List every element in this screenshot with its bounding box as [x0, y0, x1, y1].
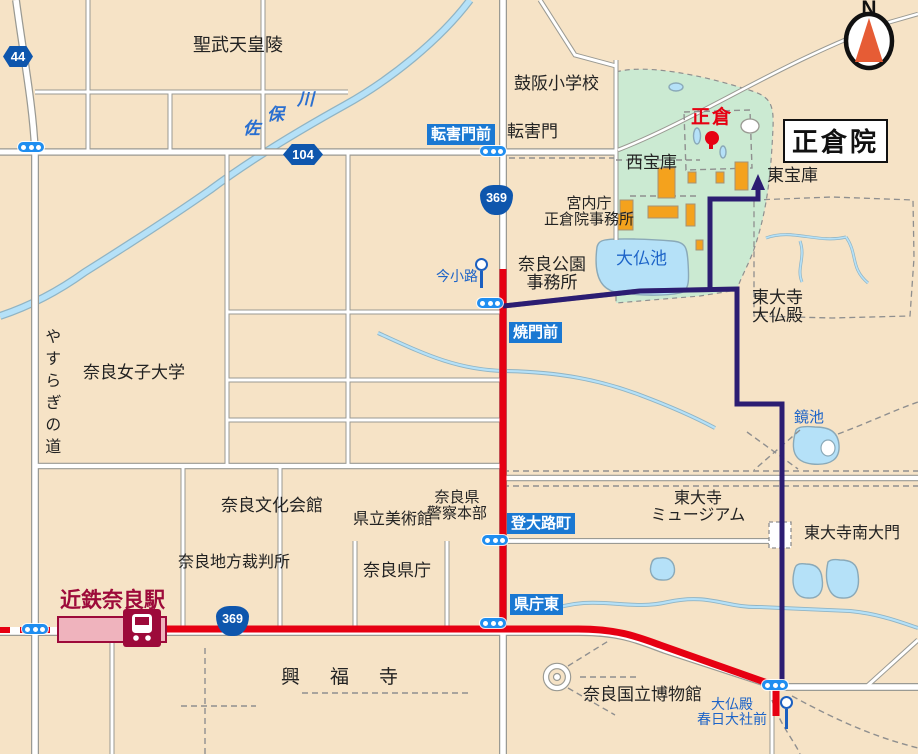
traffic-light-icon	[22, 624, 48, 634]
label-kagami-pond: 鏡池	[794, 410, 824, 426]
red-dot-marker	[705, 131, 719, 145]
label-todaiji-museum-line1: 東大寺	[643, 490, 753, 507]
kagami-pond-island	[821, 440, 835, 456]
traffic-light-icon	[477, 298, 503, 308]
label-park-office: 奈良公園 事務所	[511, 256, 593, 293]
label-imperial-office: 宮内庁 正倉院事務所	[543, 196, 635, 228]
park-clearing	[741, 119, 759, 133]
label-saho-river-char1: 佐	[243, 114, 260, 139]
bus-stop-label-yakimon-mae: 焼門前	[509, 322, 562, 343]
label-saho-river-char2: 保	[267, 100, 284, 125]
label-culture-hall: 奈良文化会館	[221, 497, 323, 515]
label-daibutsuden: 東大寺 大仏殿	[752, 289, 803, 326]
label-police-hq-line2: 警察本部	[424, 506, 490, 522]
label-pref-art-museum: 県立美術館	[353, 511, 433, 528]
bus-stop-label-tegaimon-mae: 転害門前	[427, 124, 495, 145]
label-saho-river-char3: 川	[297, 85, 314, 110]
label-todaiji-museum-line2: ミュージアム	[643, 507, 753, 524]
shosoin-area-map: N 44 104 369 369 聖武天皇陵 鼓阪小学校 転害門 佐 保 川 正…	[0, 0, 918, 754]
bus-stop-label-kencho-higashi: 県庁東	[510, 594, 563, 615]
label-nara-womens-univ: 奈良女子大学	[83, 364, 185, 382]
traffic-light-icon	[18, 142, 44, 152]
label-yasuragi-road: やすらぎの道	[42, 328, 59, 460]
label-daibutsu-pond: 大仏池	[616, 250, 667, 268]
label-pref-office: 奈良県庁	[363, 562, 431, 580]
label-police-hq-line1: 奈良県	[424, 490, 490, 506]
label-police-hq: 奈良県 警察本部	[424, 490, 490, 522]
label-imperial-office-line1: 宮内庁	[543, 196, 635, 212]
train-icon	[123, 609, 161, 652]
label-park-office-line1: 奈良公園	[511, 256, 593, 274]
label-daibutsuden-line1: 東大寺	[752, 289, 803, 307]
traffic-light-icon	[480, 146, 506, 156]
compass-north-icon: N	[840, 0, 898, 72]
label-daibutsuden-line2: 大仏殿	[752, 307, 803, 325]
traffic-light-icon	[480, 618, 506, 628]
label-national-museum: 奈良国立博物館	[583, 686, 702, 704]
traffic-light-icon	[482, 535, 508, 545]
compass-n-label: N	[861, 0, 876, 21]
bus-stop-label-daibutsuden-kasuga-line1: 大仏殿	[690, 697, 774, 712]
bus-stop-label-imakoji: 今小路	[436, 269, 478, 284]
label-park-office-line2: 事務所	[511, 274, 593, 292]
bus-stop-label-daibutsuden-kasuga-line2: 春日大社前	[690, 712, 774, 727]
label-nandaimon: 東大寺南大門	[804, 525, 900, 542]
traffic-light-icon	[762, 680, 788, 690]
label-east-treasury: 東宝庫	[767, 167, 818, 185]
label-kintetsu-nara-station: 近鉄奈良駅	[60, 590, 165, 613]
bus-stop-pole-icon	[780, 696, 792, 729]
label-west-treasury: 西宝庫	[626, 154, 677, 172]
label-todaiji-museum: 東大寺 ミュージアム	[643, 490, 753, 525]
label-shomu-tomb: 聖武天皇陵	[193, 36, 283, 55]
bus-stop-label-noborioji-cho: 登大路町	[507, 513, 575, 534]
label-imperial-office-line2: 正倉院事務所	[543, 212, 635, 228]
label-kofukuji: 興福寺	[281, 668, 428, 689]
label-tegai-gate: 転害門	[507, 123, 558, 141]
label-district-court: 奈良地方裁判所	[178, 554, 290, 571]
label-tsuzumisaka-school: 鼓阪小学校	[514, 75, 599, 93]
label-shoso: 正倉	[691, 108, 733, 129]
shosoin-title-box: 正倉院	[783, 119, 888, 163]
bus-stop-label-daibutsuden-kasuga: 大仏殿 春日大社前	[690, 697, 774, 727]
